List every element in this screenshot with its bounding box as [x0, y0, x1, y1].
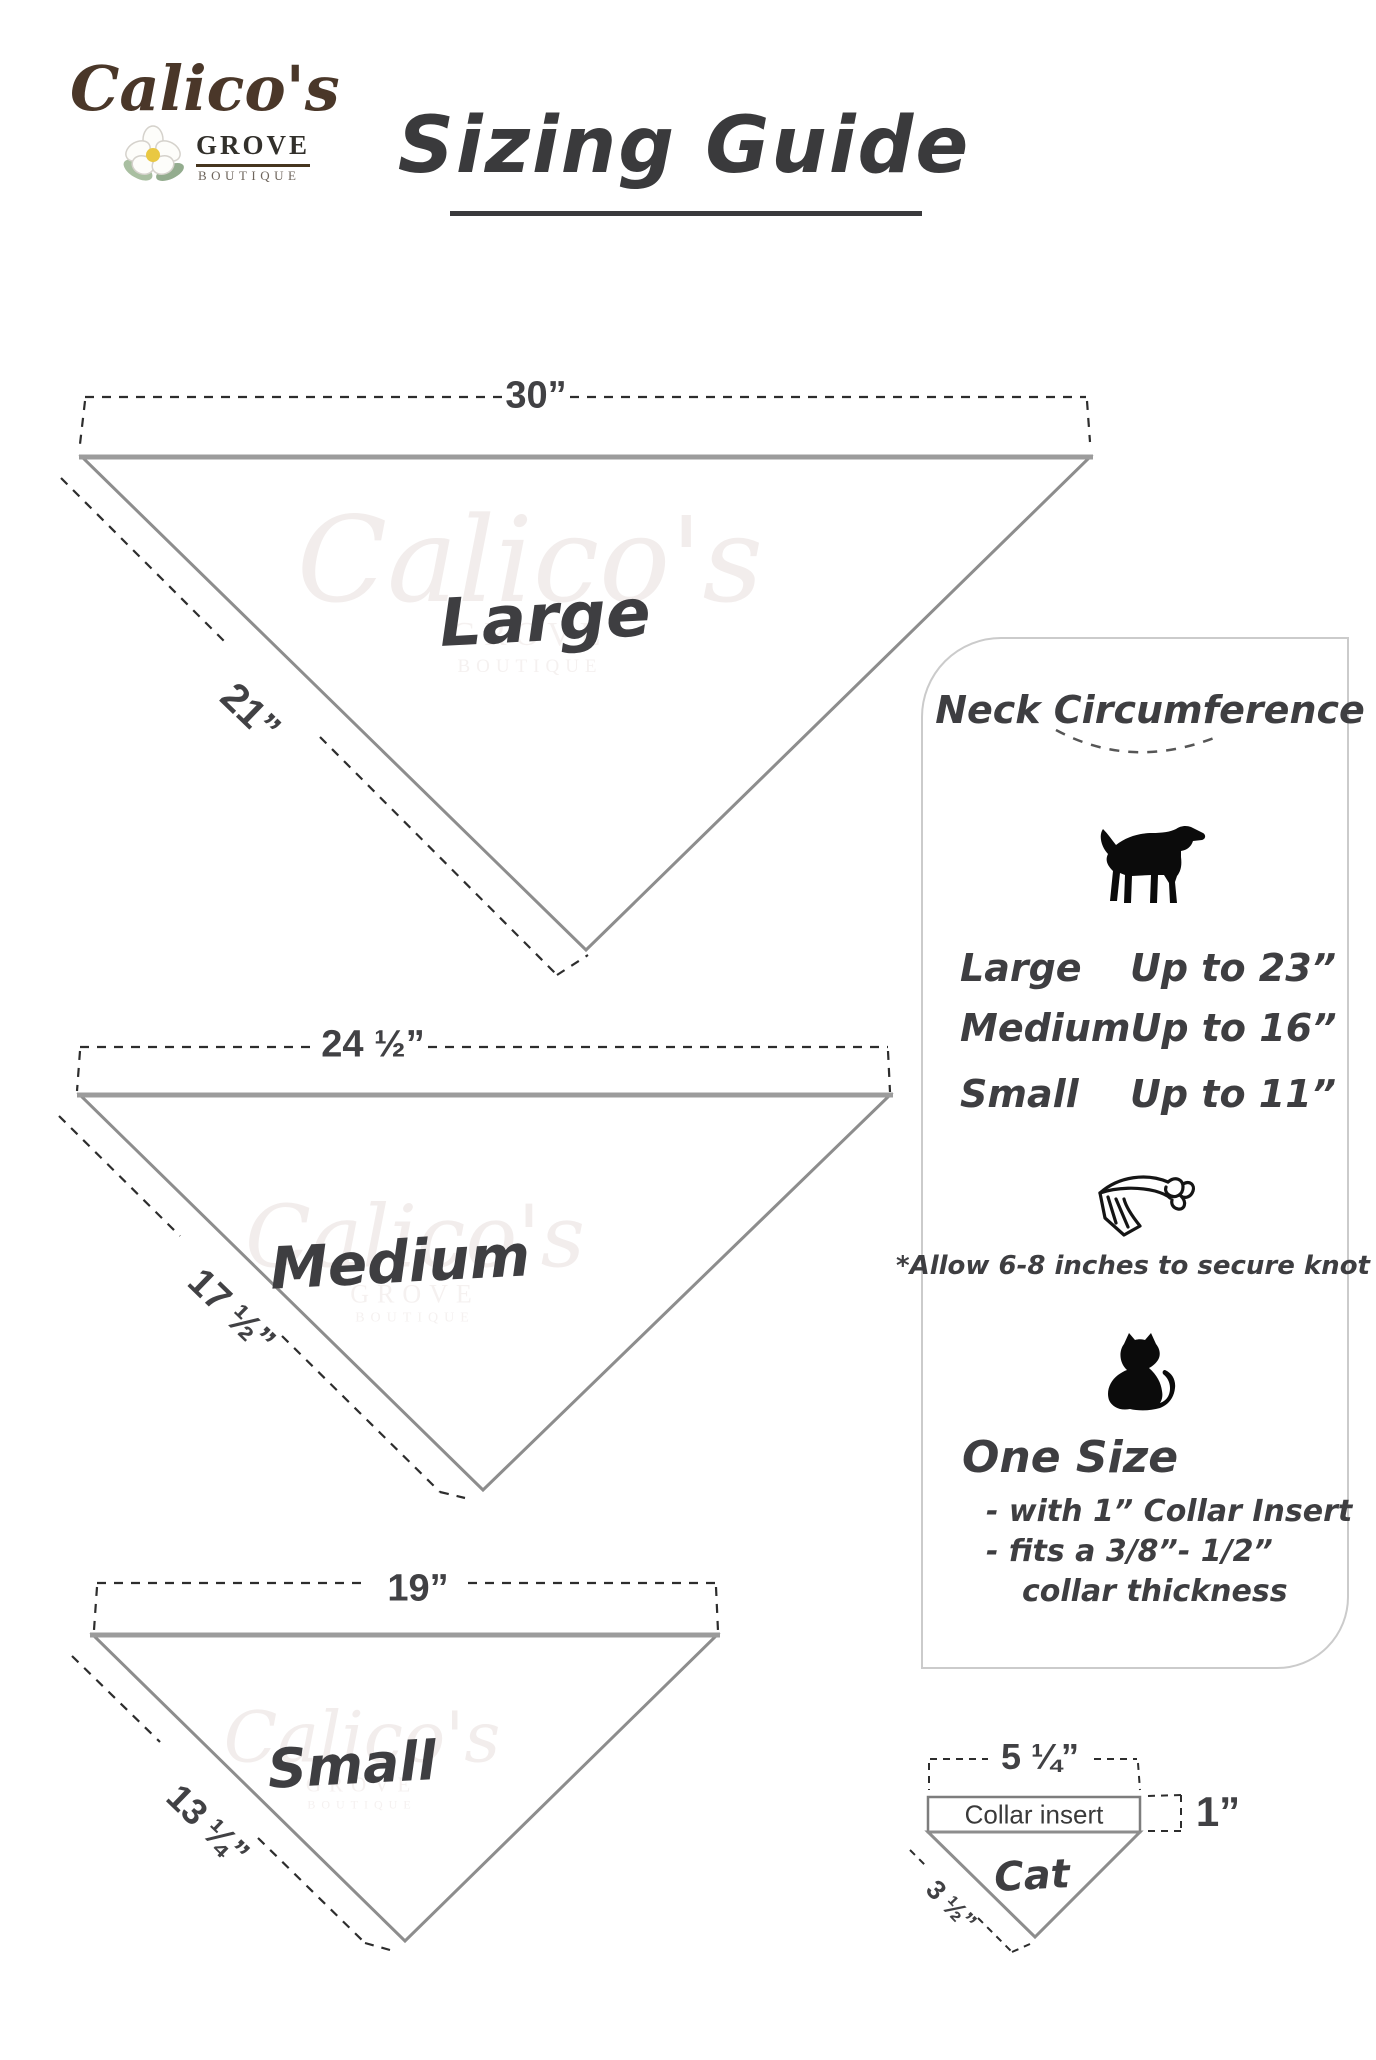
one-size-heading: One Size — [962, 1432, 1178, 1483]
knot-note: *Allow 6-8 inches to secure knot — [896, 1251, 1370, 1281]
logo-boutique: BOUTIQUE — [198, 168, 300, 184]
panel-row-size: Small — [960, 1072, 1130, 1116]
medium-width-dimension-line — [77, 1047, 890, 1092]
medium-size-label: Medium — [268, 1221, 531, 1303]
cat-size-label: Cat — [993, 1851, 1071, 1901]
cat-insert-height-dimension-line — [1148, 1795, 1181, 1831]
panel-row-value: Up to 11” — [1130, 1072, 1336, 1116]
logo-grove: GROVE — [196, 130, 310, 167]
panel-row-value: Up to 16” — [1130, 1006, 1336, 1050]
neck-circumference-underline-dash — [1056, 730, 1214, 752]
magnolia-flower-icon — [116, 118, 190, 192]
panel-row-size: Large — [960, 946, 1130, 990]
medium-width-dimension: 24 ½” — [321, 1024, 425, 1067]
panel-heading: Neck Circumference — [935, 688, 1365, 732]
small-size-label: Small — [266, 1729, 438, 1801]
collar-insert-label: Collar insert — [965, 1800, 1104, 1831]
panel-row-small: Small Up to 11” — [960, 1066, 1312, 1122]
one-size-line3: collar thickness — [1022, 1574, 1288, 1609]
tied-bandana-icon — [1100, 1177, 1193, 1235]
one-size-line1: - with 1” Collar Insert — [986, 1494, 1352, 1529]
panel-row-medium: Medium Up to 16” — [960, 1000, 1312, 1056]
logo-name: Calico's — [70, 52, 340, 125]
large-width-dimension: 30” — [505, 375, 566, 418]
medium-side-dimension-line — [59, 1116, 465, 1498]
dog-silhouette-icon — [1101, 826, 1205, 903]
page-title: Sizing Guide — [398, 101, 971, 191]
panel-row-size: Medium — [960, 1006, 1130, 1050]
cat-insert-height-dimension: 1” — [1196, 1788, 1240, 1836]
small-width-dimension: 19” — [387, 1568, 448, 1611]
large-width-dimension-line — [80, 397, 1090, 444]
cat-width-dimension: 5 ¼” — [1001, 1736, 1079, 1778]
large-size-label: Large — [438, 574, 653, 662]
small-side-dimension-line — [72, 1656, 390, 1950]
panel-row-value: Up to 23” — [1130, 946, 1336, 990]
cat-silhouette-icon — [1108, 1333, 1175, 1410]
sizing-guide-page: Calico's GROVE BOUTIQUE Calico's GROVE B… — [0, 0, 1376, 2060]
title-underline — [450, 211, 922, 216]
large-side-dimension-line — [61, 478, 588, 975]
one-size-line2: - fits a 3/8”- 1/2” — [986, 1534, 1273, 1569]
panel-row-large: Large Up to 23” — [960, 940, 1312, 996]
